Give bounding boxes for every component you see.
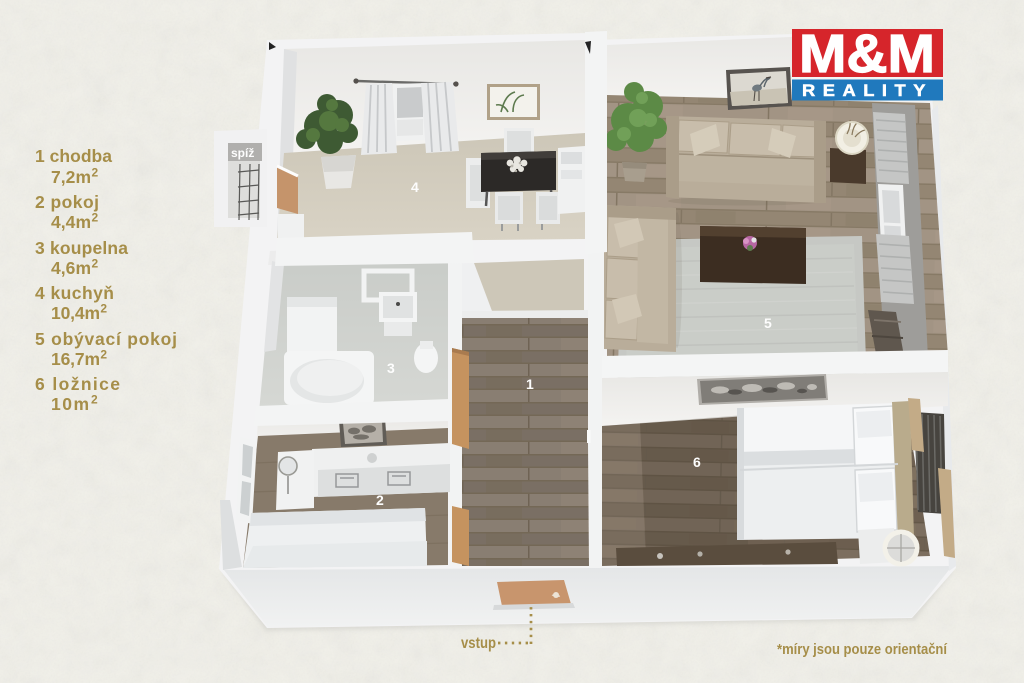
svg-text:5: 5 — [764, 315, 772, 331]
svg-text:1: 1 — [526, 376, 534, 392]
svg-text:3: 3 — [387, 360, 395, 376]
svg-text:spíž: spíž — [231, 146, 254, 160]
svg-text:2 pokoj: 2 pokoj — [35, 192, 99, 212]
svg-text:3 koupelna: 3 koupelna — [35, 238, 128, 258]
svg-text:1 chodba: 1 chodba — [35, 146, 112, 166]
svg-text:16,7m2: 16,7m2 — [51, 348, 107, 370]
svg-text:M&M: M&M — [799, 24, 935, 84]
svg-text:4: 4 — [411, 179, 419, 195]
svg-text:4 kuchyň: 4 kuchyň — [35, 283, 114, 303]
svg-text:2: 2 — [376, 492, 384, 508]
svg-text:6: 6 — [693, 454, 701, 470]
svg-text:vstup: vstup — [461, 635, 496, 652]
svg-text:REALITY: REALITY — [802, 81, 933, 100]
svg-text:5 obývací pokoj: 5 obývací pokoj — [35, 329, 177, 349]
svg-text:*míry jsou pouze orientační: *míry jsou pouze orientační — [777, 642, 948, 658]
svg-text:10,4m2: 10,4m2 — [51, 302, 107, 324]
svg-text:6 ložnice: 6 ložnice — [35, 374, 120, 394]
